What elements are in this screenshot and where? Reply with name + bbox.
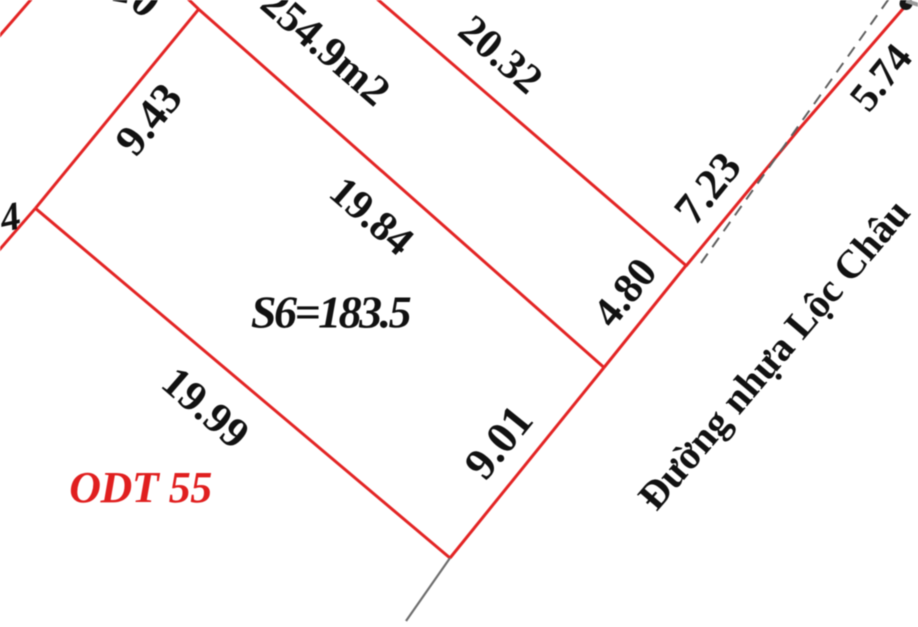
svg-text:19.84: 19.84 [320,168,421,265]
svg-text:Đường nhựa Lộc Châu: Đường nhựa Lộc Châu [629,190,918,519]
svg-text:0: 0 [122,0,171,27]
svg-text:S6=183.5: S6=183.5 [251,287,411,338]
svg-text:9.43: 9.43 [105,74,192,165]
svg-text:20.32: 20.32 [449,7,550,104]
svg-text:4.80: 4.80 [584,250,666,336]
svg-text:7.23: 7.23 [664,143,751,234]
svg-text:19.99: 19.99 [153,358,259,459]
svg-text:ODT 55: ODT 55 [69,463,211,512]
svg-text:4: 4 [0,193,25,241]
svg-text:9.01: 9.01 [454,396,542,489]
svg-text:254.9m2: 254.9m2 [252,0,399,116]
svg-text:5.74: 5.74 [840,35,918,120]
